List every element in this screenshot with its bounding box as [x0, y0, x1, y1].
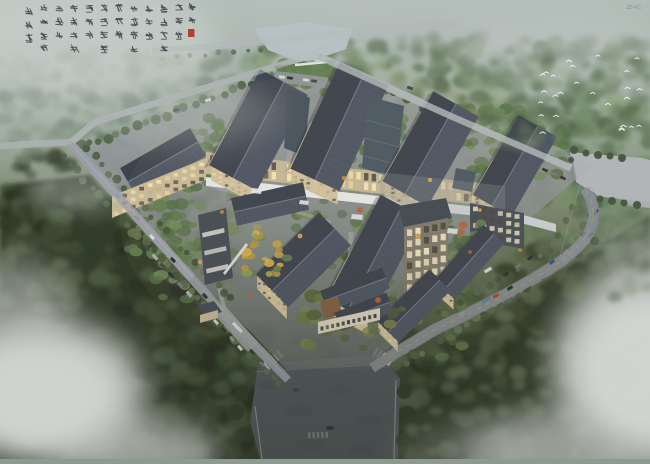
svg-text:JZ-FC: JZ-FC	[626, 5, 641, 11]
